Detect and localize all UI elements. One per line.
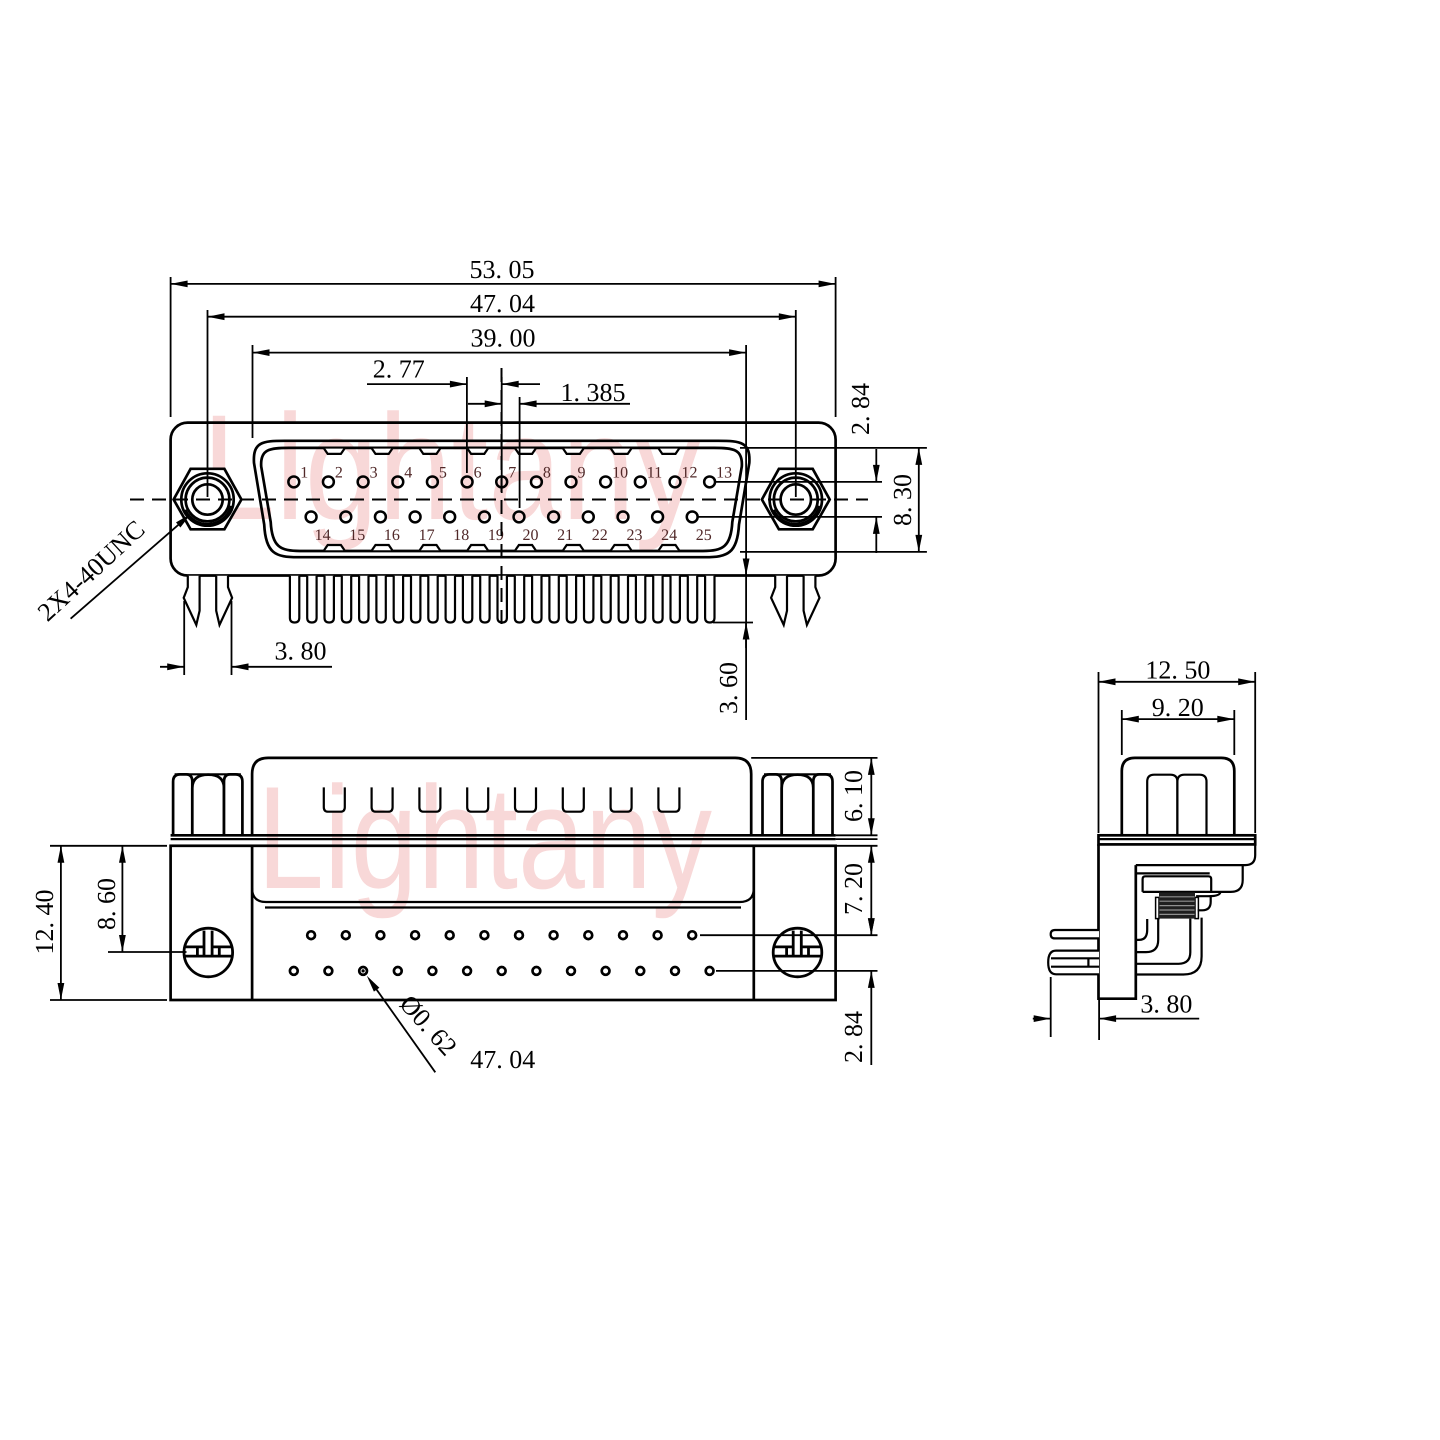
svg-text:7. 20: 7. 20 (839, 863, 868, 915)
svg-text:39. 00: 39. 00 (471, 324, 536, 353)
svg-text:6. 10: 6. 10 (839, 770, 868, 822)
svg-text:3. 80: 3. 80 (275, 637, 327, 666)
svg-text:8. 60: 8. 60 (92, 878, 121, 930)
svg-text:53. 05: 53. 05 (470, 255, 535, 284)
svg-text:20: 20 (523, 527, 539, 544)
svg-text:3. 80: 3. 80 (1140, 990, 1192, 1019)
svg-text:24: 24 (661, 527, 677, 544)
svg-text:6: 6 (474, 465, 482, 482)
svg-text:9: 9 (578, 465, 586, 482)
svg-text:23: 23 (627, 527, 643, 544)
svg-text:22: 22 (592, 527, 608, 544)
svg-text:16: 16 (384, 527, 400, 544)
svg-text:3: 3 (370, 465, 378, 482)
svg-text:17: 17 (419, 527, 435, 544)
svg-text:9. 20: 9. 20 (1152, 693, 1204, 722)
svg-text:25: 25 (696, 527, 712, 544)
svg-text:10: 10 (612, 465, 628, 482)
svg-text:21: 21 (557, 527, 573, 544)
svg-text:8. 30: 8. 30 (888, 474, 917, 526)
svg-text:11: 11 (647, 465, 662, 482)
svg-text:13: 13 (716, 465, 732, 482)
svg-text:12. 50: 12. 50 (1145, 656, 1210, 685)
svg-text:14: 14 (315, 527, 331, 544)
svg-text:3. 60: 3. 60 (714, 662, 743, 714)
svg-text:7: 7 (508, 465, 516, 482)
svg-text:8: 8 (543, 465, 551, 482)
svg-text:47. 04: 47. 04 (470, 1045, 535, 1074)
svg-text:Lightany: Lightany (257, 756, 712, 919)
svg-text:5: 5 (439, 465, 447, 482)
svg-text:18: 18 (453, 527, 469, 544)
svg-text:1: 1 (300, 465, 308, 482)
svg-text:2. 77: 2. 77 (373, 355, 425, 384)
svg-text:12: 12 (682, 465, 698, 482)
svg-text:2. 84: 2. 84 (846, 383, 875, 435)
svg-text:47. 04: 47. 04 (470, 289, 535, 318)
svg-text:4: 4 (404, 465, 412, 482)
svg-text:15: 15 (349, 527, 365, 544)
svg-text:2. 84: 2. 84 (839, 1011, 868, 1063)
svg-text:2: 2 (335, 465, 343, 482)
svg-text:1. 385: 1. 385 (561, 378, 626, 407)
svg-text:12. 40: 12. 40 (30, 890, 59, 955)
